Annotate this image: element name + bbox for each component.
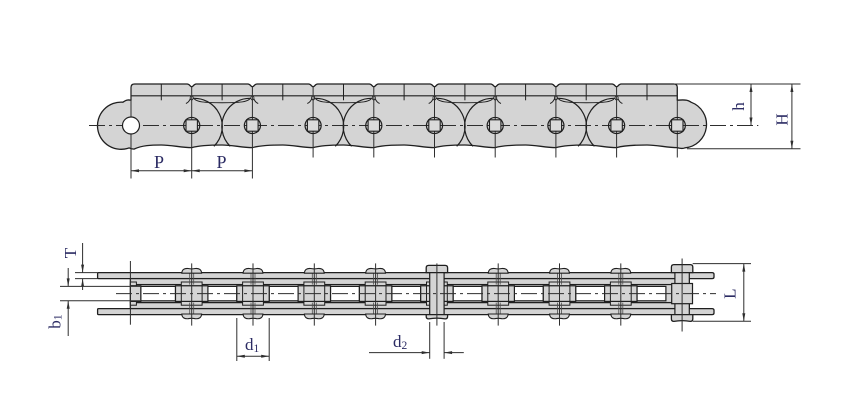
svg-text:T: T — [61, 247, 80, 258]
svg-text:P: P — [217, 152, 227, 172]
svg-text:L: L — [721, 289, 740, 299]
svg-text:h: h — [729, 102, 748, 111]
svg-text:d1: d1 — [245, 335, 260, 355]
svg-text:b1: b1 — [45, 314, 64, 329]
svg-text:H: H — [772, 113, 791, 125]
svg-text:d2: d2 — [393, 332, 408, 352]
svg-text:P: P — [154, 152, 164, 172]
